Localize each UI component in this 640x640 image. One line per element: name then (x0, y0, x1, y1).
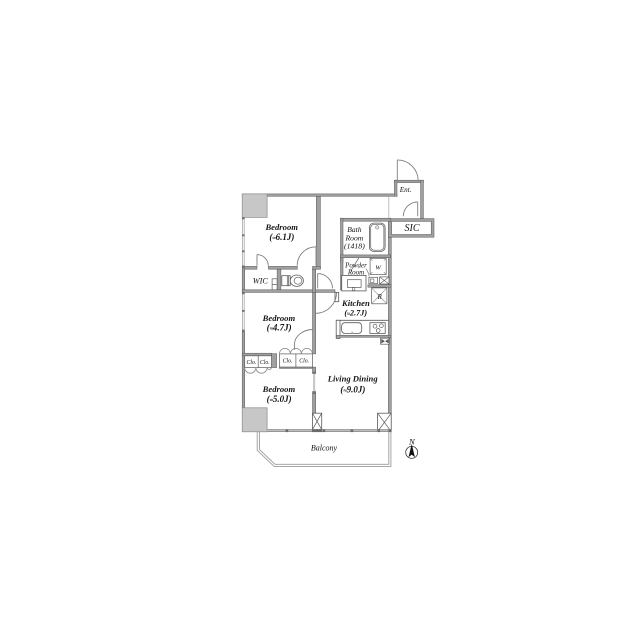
svg-text:Clo.: Clo. (283, 359, 293, 365)
svg-text:(1418): (1418) (344, 241, 365, 250)
svg-text:Kitchen: Kitchen (341, 298, 370, 308)
svg-text:Clo.: Clo. (299, 359, 309, 365)
svg-text:W: W (375, 264, 381, 271)
svg-text:R: R (376, 293, 382, 301)
svg-text:Bedroom: Bedroom (264, 222, 298, 232)
svg-text:Bedroom: Bedroom (262, 313, 296, 323)
svg-text:Ent.: Ent. (399, 186, 412, 194)
svg-text:SIC: SIC (405, 223, 420, 234)
svg-text:Balcony: Balcony (311, 443, 338, 452)
svg-text:WIC: WIC (253, 276, 269, 285)
svg-text:Living Dining: Living Dining (327, 374, 379, 384)
svg-text:Bedroom: Bedroom (262, 384, 296, 394)
svg-text:Clo.: Clo. (246, 360, 256, 366)
svg-text:Clo.: Clo. (260, 360, 270, 366)
